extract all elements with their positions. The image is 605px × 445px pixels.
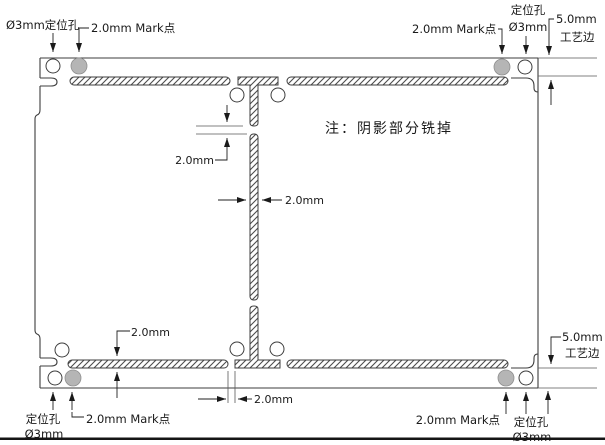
right-corner-rout-top (511, 78, 538, 92)
board-hole-top-center-left (230, 88, 244, 102)
dimension-center-tab-gap: 2.0mm (175, 105, 247, 167)
label-mark-point-top-right: 2.0mm Mark点 (412, 22, 496, 36)
label-mark-point-top-left: 2.0mm Mark点 (91, 21, 175, 35)
panel-left-edge (35, 58, 40, 388)
callout-bottom-right: 2.0mm Mark点 定位孔 Ø3mm 5.0mm 工艺边 (416, 330, 603, 444)
label-process-edge-bottom-line1: 5.0mm (562, 330, 603, 344)
bottom-slot-right-segment (287, 360, 508, 368)
label-process-edge-top-line1: 5.0mm (556, 12, 597, 26)
label-mark-point-bottom-right: 2.0mm Mark点 (416, 413, 500, 427)
label-positioning-hole-top-right-line2: Ø3mm (509, 20, 548, 34)
mark-point-bottom-left (65, 370, 81, 386)
label-bottom-slot-height: 2.0mm (131, 326, 170, 339)
board-hole-top-center-right (271, 88, 285, 102)
center-slot-top-tee (238, 77, 278, 126)
leader-mark-point-top-right (498, 29, 502, 54)
label-positioning-hole-bottom-right-line1: 定位孔 (514, 415, 549, 429)
top-slot-right-segment (287, 77, 508, 85)
positioning-hole-top-right (518, 60, 532, 74)
leader-process-edge-bottom-down (551, 337, 561, 364)
label-positioning-hole-bottom-right-line2: Ø3mm (513, 430, 552, 444)
label-mark-point-bottom-left: 2.0mm Mark点 (86, 412, 170, 426)
label-center-tab-gap: 2.0mm (175, 154, 214, 167)
center-slot-bottom-tee (235, 306, 280, 368)
positioning-hole-bottom-left (48, 371, 62, 385)
callout-bottom-left: 定位孔 Ø3mm 2.0mm Mark点 (25, 392, 171, 441)
panel-outline (35, 58, 597, 388)
bracket-mark-point-bottom-left (72, 412, 84, 417)
positioning-holes (46, 59, 533, 385)
label-positioning-hole-bottom-left-line1: 定位孔 (26, 412, 61, 426)
callout-top-left: Ø3mm定位孔 2.0mm Mark点 (6, 18, 175, 52)
bottom-border-line (0, 438, 605, 441)
positioning-hole-top-left (46, 59, 60, 73)
label-center-slot-width: 2.0mm (285, 194, 324, 207)
label-bottom-tab-width: 2.0mm (254, 393, 293, 406)
callout-top-right: 2.0mm Mark点 定位孔 Ø3mm 5.0mm 工艺边 (412, 3, 597, 105)
leader-mark-point-top-left (79, 28, 89, 52)
label-process-edge-bottom-line2: 工艺边 (565, 346, 600, 360)
top-slot-left-segment (70, 77, 230, 85)
label-process-edge-top-line2: 工艺边 (560, 30, 595, 44)
tab-gap-arrow-up (215, 138, 227, 160)
note-milled-area: 注：阴影部分铣掉 (325, 121, 453, 137)
mark-point-top-left (71, 58, 87, 74)
mark-point-bottom-right (498, 370, 514, 386)
bottom-slot-left-segment (68, 360, 228, 368)
board-hole-bottom-center-left (230, 342, 244, 356)
mark-point-top-right (494, 59, 510, 75)
board-hole-bottom-center-right (270, 342, 284, 356)
right-corner-rout-bottom (511, 354, 538, 368)
label-positioning-hole-top-right-line1: 定位孔 (511, 3, 546, 17)
tab-gap-extension-lines (196, 126, 247, 134)
label-positioning-hole-top-left: Ø3mm定位孔 (6, 18, 80, 32)
dimension-center-slot-width: 2.0mm (218, 194, 324, 207)
pcb-panel-drawing-canvas: Ø3mm定位孔 2.0mm Mark点 2.0mm Mark点 定位孔 Ø3mm… (0, 0, 605, 445)
leader-process-edge-top-down (549, 19, 554, 55)
center-slot-middle-segment (250, 134, 258, 300)
pcb-panel-drawing: Ø3mm定位孔 2.0mm Mark点 2.0mm Mark点 定位孔 Ø3mm… (0, 0, 605, 445)
positioning-hole-bottom-right (519, 371, 533, 385)
bottom-slot-arrow-down (117, 331, 130, 356)
board-hole-bottom-left (55, 343, 69, 357)
bottom-tab-extension-lines (228, 371, 235, 403)
left-edge-rout-notch-bottom (40, 358, 57, 366)
left-edge-rout-notch-top (40, 78, 57, 86)
